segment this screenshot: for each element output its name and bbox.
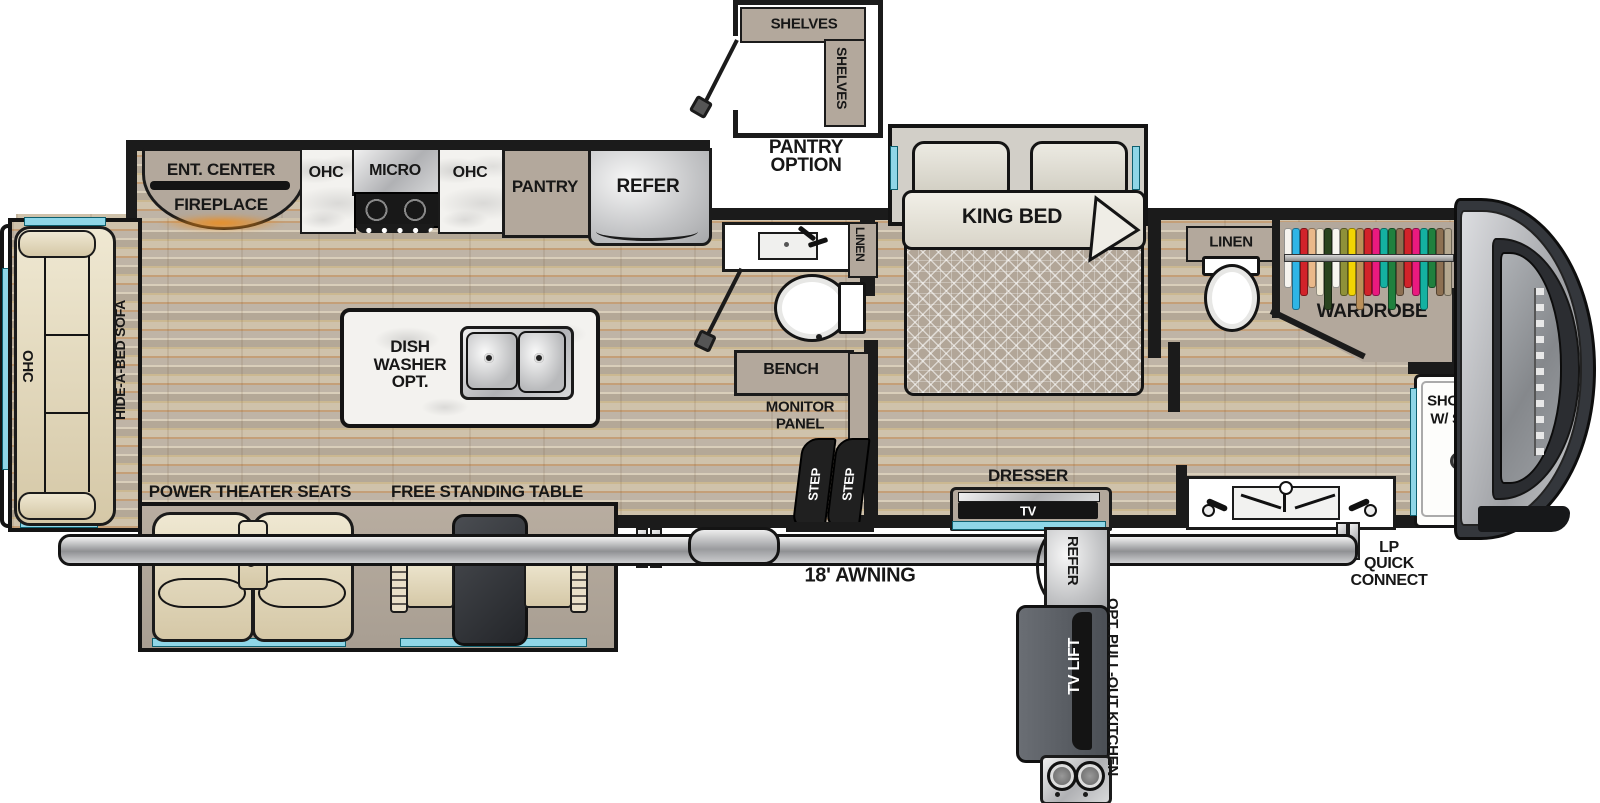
clothes-hanger [1364, 228, 1372, 296]
sofa-cushion-divider-1 [44, 334, 90, 336]
refer-label: REFER [617, 176, 680, 198]
king-bed-quilt [904, 242, 1144, 396]
fireplace-glow [158, 214, 284, 232]
dresser-label: DRESSER [988, 466, 1068, 486]
sofa-arm-top [18, 230, 96, 258]
outdoor-knob-2 [1083, 792, 1088, 797]
wall-top-front [1136, 208, 1466, 220]
blanket-fold-corner [1082, 194, 1142, 264]
wall-galley-left [126, 140, 137, 226]
outdoor-refer-label: REFER [1064, 536, 1081, 585]
theater-seat-left-cushion-line [158, 578, 246, 608]
tv-lift-label: TV LIFT [1066, 638, 1084, 695]
front-cap-skirt [1478, 506, 1570, 532]
wardrobe-left-wall [1272, 218, 1280, 318]
shower-window [1410, 388, 1417, 516]
awning-handle [688, 527, 780, 565]
step-2-label: STEP [838, 468, 857, 501]
wardrobe-rod [1284, 254, 1454, 262]
monitor-panel-label-2: PANEL [776, 416, 824, 433]
ohc-left-label: OHC [309, 164, 344, 182]
monitor-panel-label-1: MONITOR [766, 399, 834, 416]
outdoor-knob-1 [1055, 792, 1060, 797]
pantry-shelves-top-label: SHELVES [771, 16, 838, 33]
range-knob-strip [356, 224, 434, 233]
outdoor-burner-1 [1047, 761, 1077, 791]
fireplace-label: FIREPLACE [174, 195, 268, 215]
pantry-option-inset: SHELVES SHELVES [733, 0, 883, 138]
refrigerator-door-arc [596, 222, 698, 241]
bench-side-panel [848, 352, 870, 448]
ent-center-tv-bar [150, 181, 290, 190]
step-1-label: STEP [804, 468, 823, 501]
sink-drain-left [484, 353, 494, 363]
pantry-option-caption-2: OPTION [770, 155, 841, 177]
clothes-hanger [1388, 228, 1396, 310]
sofa-slide-window-top [24, 217, 106, 226]
clothes-hanger [1436, 228, 1444, 296]
front-vanity-knob [1279, 481, 1293, 495]
mid-bath-toilet-tank [838, 282, 866, 334]
sofa-front-line [88, 256, 90, 492]
clothes-hanger [1316, 228, 1324, 296]
ohc-cabinet-right [438, 148, 504, 234]
bench-label: BENCH [763, 361, 818, 379]
ent-center-label: ENT. CENTER [167, 160, 275, 180]
sofa-ohc-label: OHC [19, 350, 36, 382]
mid-bath-linen-label: LINEN [853, 227, 867, 262]
front-cap-trim-strip-fix [1534, 288, 1544, 456]
dresser-top-trim [958, 492, 1100, 502]
clothes-hanger [1340, 228, 1348, 296]
clothes-hanger [1300, 228, 1308, 296]
sink-drain-right [534, 353, 544, 363]
free-standing-table-label: FREE STANDING TABLE [391, 482, 583, 502]
pantry-label: PANTRY [512, 177, 578, 197]
sofa-back-line [44, 256, 46, 492]
clothes-hanger [1356, 228, 1364, 310]
clothes-hanger [1372, 228, 1380, 296]
wall-bedroom-right-lower [1168, 342, 1180, 412]
pantry-door-latch-icon [689, 95, 714, 120]
king-slide-window-left [890, 146, 898, 190]
awning-label: 18' AWNING [804, 565, 915, 588]
clothes-hanger [1324, 228, 1332, 310]
tv-lift-cabinet [1016, 605, 1110, 763]
dishwasher-label-3: OPT. [392, 372, 429, 392]
theater-seat-right-cushion-line [258, 578, 346, 608]
wall-bedroom-right [1148, 218, 1161, 358]
micro-label: MICRO [369, 162, 421, 180]
clothes-hanger [1444, 228, 1452, 296]
sofa-cushion-divider-2 [44, 412, 90, 414]
ohc-right-label: OHC [453, 164, 488, 182]
mid-bath-toilet-flush [816, 334, 822, 340]
king-slide-window-right [1132, 146, 1140, 190]
sofa-arm-bottom [18, 492, 96, 520]
front-toilet-bowl [1204, 264, 1260, 332]
front-vanity-faucet-left-knob [1202, 504, 1215, 517]
hide-a-bed-sofa-label: HIDE-A-BED SOFA [112, 300, 128, 420]
front-vanity-faucet-right-knob [1364, 504, 1377, 517]
power-theater-seats-label: POWER THEATER SEATS [149, 482, 351, 502]
ohc-cabinet-left [300, 148, 356, 234]
clothes-hanger [1412, 228, 1420, 296]
clothes-hanger [1348, 228, 1356, 296]
mid-bath-sink-drain [784, 242, 789, 247]
clothes-hanger [1420, 228, 1428, 310]
pull-out-kitchen-label: OPT. PULL-OUT KITCHEN [1104, 598, 1121, 776]
clothes-hanger [1396, 228, 1404, 296]
lp-quick-connect-label-3: CONNECT [1350, 572, 1427, 590]
outdoor-burner-2 [1075, 761, 1105, 791]
lp-quick-connect-label-2: QUICK [1364, 555, 1414, 573]
wardrobe-clothes [1284, 228, 1452, 316]
floorplan-canvas: SHELVES SHELVES PANTRY OPTION ENT. CENTE… [0, 0, 1600, 803]
dishwasher-label-1: DISH [390, 337, 429, 357]
dresser-tv-label: TV [1020, 504, 1036, 519]
pantry-shelves-side-label: SHELVES [834, 47, 850, 109]
entry-step-threshold [786, 522, 874, 532]
clothes-hanger [1292, 228, 1300, 310]
front-linen-label: LINEN [1209, 234, 1253, 251]
king-bed-label: KING BED [962, 205, 1062, 229]
cooktop-range [354, 192, 440, 228]
